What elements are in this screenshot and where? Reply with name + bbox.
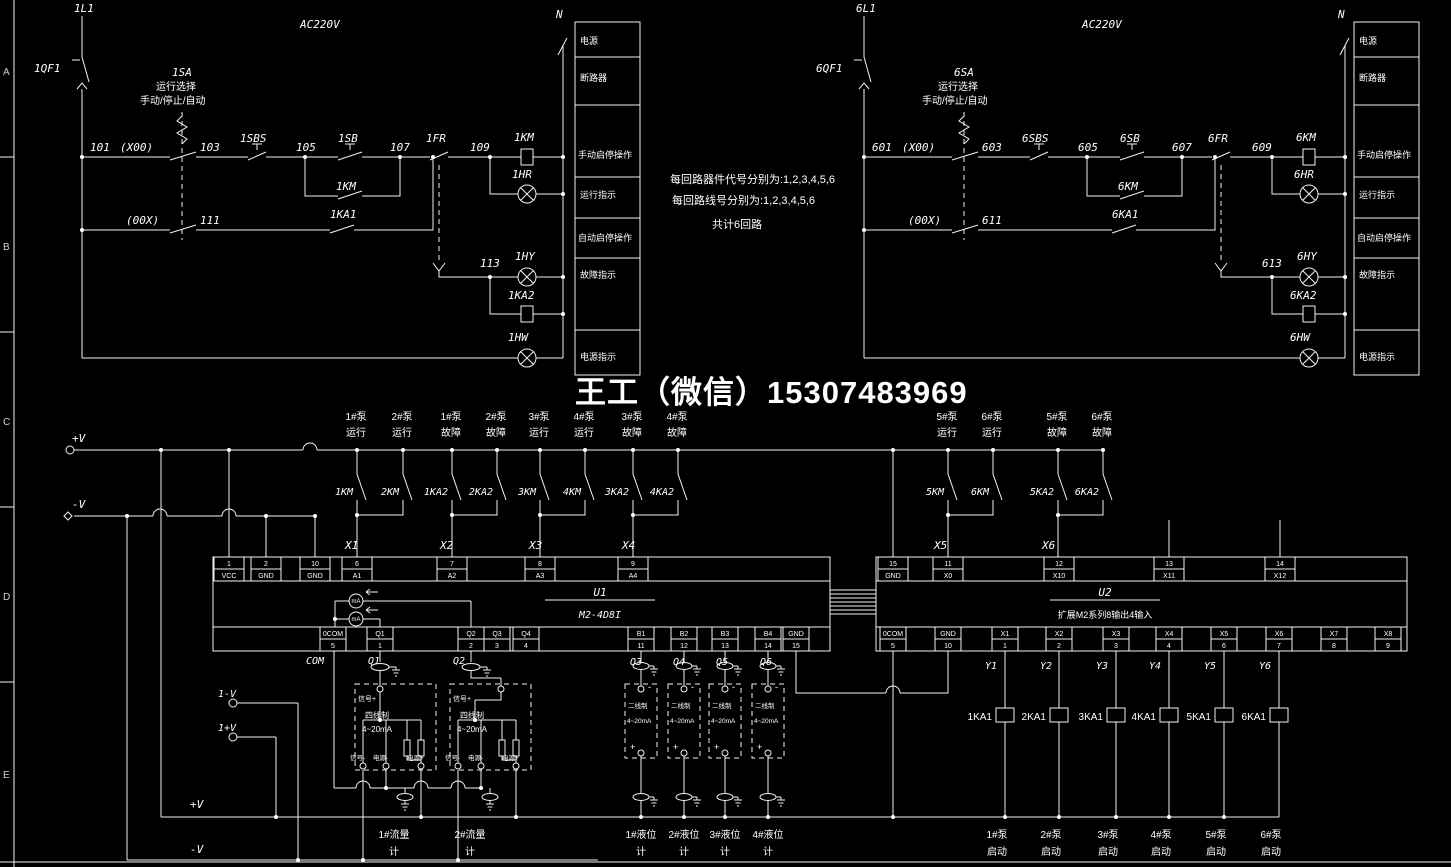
pump-start-caption: 启动	[1151, 845, 1171, 858]
terminal-ring-icon	[638, 686, 644, 692]
contact-caption: 6#泵	[1091, 411, 1112, 423]
pump-start-caption: 2#泵	[1040, 829, 1061, 841]
minus-v-terminal-icon	[64, 512, 72, 520]
terminal-number: 2	[469, 643, 473, 650]
relay-name: 3KA1	[1079, 712, 1104, 723]
lamp-label: 1HR	[512, 168, 532, 181]
terminal-x-refs: X1 X2 X3 X4 X5 X6	[344, 539, 1056, 552]
output-label: Y5	[1204, 661, 1216, 672]
relay-name: 6KA1	[1242, 712, 1267, 723]
relay-name: 5KA1	[1187, 712, 1212, 723]
terminal-label: Q4	[521, 631, 530, 638]
transmitter-pin-label: 信号+	[358, 694, 376, 703]
voltage-label: AC220V	[1081, 18, 1123, 31]
coil-label: 6KA2	[1290, 289, 1317, 302]
legend-row: 运行指示	[1359, 189, 1395, 200]
terminal-number: 1	[1003, 643, 1007, 650]
terminal-label: Q2	[466, 631, 475, 638]
signal-input-label: 1-V	[218, 689, 237, 700]
lamp-1HY-icon	[518, 268, 536, 286]
transmitter-type: 二线制	[712, 701, 732, 710]
legend-row: 运行指示	[580, 189, 616, 200]
terminal-ring-icon	[383, 763, 389, 769]
relay-contact-label: 1KA1	[330, 208, 357, 221]
cable-shield-icon	[633, 794, 649, 801]
terminal-label: A2	[448, 573, 457, 580]
terminal-label: X12	[1274, 573, 1287, 580]
transmitter-pin-label: 电源+	[502, 753, 519, 762]
legend-table-right: 电源 断路器 手动启停操作 运行指示 自动启停操作 故障指示 电源指示	[1354, 22, 1419, 375]
wire-number: (X00)	[902, 141, 935, 154]
pump-start-caption: 6#泵	[1260, 829, 1281, 841]
circuit6-junction-dots	[864, 157, 1345, 314]
contact-wires	[948, 450, 1112, 557]
legend-row: 断路器	[580, 72, 607, 83]
pump-status-contacts-left: 1#泵 运行 2#泵 运行 1#泵 故障 2#泵 故障 3#泵 运行 4#泵 运…	[335, 411, 688, 557]
frame-row-letter: E	[3, 770, 10, 781]
xref-label: X5	[933, 539, 947, 552]
relay-coil-1KA1-icon	[996, 708, 1014, 722]
ma-meter-label: mA	[352, 617, 361, 623]
terminal-number: 4	[1167, 643, 1171, 650]
contact-caption: 故障	[486, 426, 506, 439]
thermal-relay-label: 1FR	[426, 132, 446, 145]
signal-input-label: 1+V	[218, 723, 237, 734]
resistor-icon	[499, 740, 505, 756]
terminal-number: 12	[680, 643, 688, 650]
lamp-6HW-icon	[1300, 349, 1318, 367]
contact-caption: 2#泵	[391, 411, 412, 423]
coil-label: 6KM	[1296, 131, 1316, 144]
lamp-6HR-icon	[1300, 185, 1318, 203]
wire-number: 607	[1172, 141, 1192, 154]
loop-notes: 每回路器件代号分别为:1,2,3,4,5,6 每回路线号分别为:1,2,3,4,…	[670, 172, 835, 231]
contact-caption: 故障	[1047, 426, 1067, 439]
u2-underline	[1050, 520, 1280, 600]
contact-caption: 1#泵	[440, 411, 461, 423]
pump-start-caption: 1#泵	[986, 829, 1007, 841]
legend-row: 手动启停操作	[1357, 149, 1411, 160]
module-model: 扩展M2系列8输出4输入	[1058, 609, 1153, 620]
terminal-label: GND	[788, 631, 804, 638]
terminal-ring-icon	[722, 750, 728, 756]
polarity-label: +	[673, 742, 678, 752]
lamp-1HR-icon	[518, 185, 536, 203]
terminal-number: 13	[721, 643, 729, 650]
terminal-label: X2	[1055, 631, 1064, 638]
level-meter-caption: 计	[763, 845, 773, 858]
coil-1KM-icon	[521, 149, 533, 165]
transmitter-pin-label: 信号-	[445, 753, 460, 762]
cable-shield-icon	[462, 664, 480, 671]
pushbutton-label: 1SB	[338, 132, 358, 145]
lamp-6HY-icon	[1300, 268, 1318, 286]
terminal-number: 14	[764, 643, 772, 650]
terminal-number: 6	[1222, 643, 1226, 650]
terminal-ring-icon	[765, 750, 771, 756]
flow-meter-caption: 计	[389, 845, 399, 858]
terminal-number: 11	[944, 561, 951, 568]
lamp-label: 6HW	[1290, 331, 1311, 344]
coil-6KM-icon	[1303, 149, 1315, 165]
terminal-ring-icon	[681, 686, 687, 692]
legend-row: 电源	[1359, 35, 1377, 46]
terminal-ring-icon	[360, 763, 366, 769]
output-label: Y1	[985, 661, 997, 672]
pushbutton-label: 6SBS	[1022, 132, 1049, 145]
coil-6KA2-icon	[1303, 306, 1315, 322]
pushbutton-label: 6SB	[1120, 132, 1140, 145]
pump-start-caption: 4#泵	[1150, 829, 1171, 841]
frame-row-letter: C	[3, 417, 10, 428]
polarity-label: -	[732, 682, 735, 692]
circuit1-wires	[72, 16, 567, 358]
ma-meter-label: mA	[352, 599, 361, 605]
contact-name: 4KM	[563, 487, 582, 498]
contact-name: 1KM	[335, 487, 354, 498]
output-label: Y2	[1040, 661, 1052, 672]
phase-label: 1L1	[74, 2, 94, 15]
xref-label: X6	[1041, 539, 1056, 552]
contact-caption: 故障	[622, 426, 642, 439]
terminal-number: 8	[1332, 643, 1336, 650]
module-name: U1	[593, 586, 606, 599]
contact-caption: 故障	[441, 426, 461, 439]
contact-caption: 运行	[574, 426, 594, 439]
terminal-number: 6	[355, 561, 359, 568]
terminal-label: X3	[1112, 631, 1121, 638]
circuit6-wires	[854, 16, 1349, 358]
transmitter-pin-label: 电源-	[468, 753, 483, 762]
terminal-label: X10	[1053, 573, 1066, 580]
aux-contact-label: 6KM	[1118, 180, 1138, 193]
transmitter-range: 4~20mA	[754, 718, 779, 725]
terminal-label: A1	[353, 573, 362, 580]
terminal-number: 1	[227, 561, 231, 568]
terminal-label: B3	[721, 631, 730, 638]
transmitter-type: 二线制	[755, 701, 775, 710]
terminal-number: 3	[495, 643, 499, 650]
flow-meter-caption: 1#流量	[378, 828, 409, 841]
contact-caption: 运行	[982, 426, 1002, 439]
input-terminal-icon	[229, 699, 237, 707]
terminal-number: 9	[1386, 643, 1390, 650]
relay-name: 4KA1	[1132, 712, 1157, 723]
plc-module-u1: mA mA U1 M2-4D8I 1 VCC 2 GND 10 GND 6 A1…	[213, 557, 830, 668]
level-meter-caption: 1#液位	[625, 828, 656, 841]
pump-start-caption: 启动	[1206, 845, 1226, 858]
terminal-label: GND	[940, 631, 956, 638]
pump-start-caption: 启动	[1098, 845, 1118, 858]
relay-coil-4KA1-icon	[1160, 708, 1178, 722]
cable-shield-icon	[717, 794, 733, 801]
contact-name: 3KM	[517, 487, 537, 498]
wire-number: 105	[296, 141, 316, 154]
level-meter-caption: 计	[679, 845, 689, 858]
cable-shield-icon	[397, 794, 413, 801]
terminal-label: 0COM	[323, 631, 343, 638]
terminal-ring-icon	[513, 763, 519, 769]
terminal-label: B2	[680, 631, 689, 638]
flow-meter-caption: 计	[465, 845, 475, 858]
wire-number: (X00)	[120, 141, 153, 154]
legend-row: 故障指示	[580, 269, 616, 280]
cad-schematic-canvas: A B C D E 1L1 1QF1 AC220V N 1SA 运行选择 手动/…	[0, 0, 1451, 867]
transmitter-pin-label: 电源-	[373, 753, 388, 762]
terminal-number: 7	[450, 561, 454, 568]
frame-row-letter: A	[3, 67, 10, 78]
cable-shield-icon	[676, 794, 692, 801]
terminal-number: 14	[1276, 561, 1284, 568]
lamp-label: 1HY	[515, 250, 536, 263]
contact-junction-dots	[357, 450, 678, 515]
input-terminal-icon	[229, 733, 237, 741]
breaker-label: 6QF1	[816, 62, 843, 75]
terminal-label: X1	[1001, 631, 1010, 638]
terminal-label: Q3	[492, 631, 501, 638]
resistor-icon	[418, 740, 424, 756]
transmitter-type: 四线制	[460, 710, 484, 720]
contact-caption: 运行	[346, 426, 366, 439]
terminal-ring-icon	[478, 763, 484, 769]
flow-transmitters: 1-V 1+V 信号+ 四线制 4~20mA 信号- 电源- 电源+ 信号+ 四…	[127, 651, 768, 860]
selector-label: 6SA	[954, 66, 974, 79]
relay-name: 1KA1	[968, 712, 993, 723]
selector-caption: 运行选择	[156, 80, 196, 93]
terminal-label: X0	[944, 573, 953, 580]
level-transmitters: - - - - 二线制 4~20mA + 二线制 4~20mA + 二线制 4~…	[625, 651, 785, 858]
relay-wires	[161, 651, 1279, 817]
watermark-text: 王工（微信）15307483969	[575, 375, 968, 410]
neutral-label: N	[555, 8, 563, 21]
wire-number: 605	[1078, 141, 1098, 154]
level-meter-caption: 3#液位	[709, 828, 740, 841]
wire-number: 107	[390, 141, 410, 154]
terminal-label: X6	[1275, 631, 1284, 638]
terminal-number: 5	[891, 643, 895, 650]
terminal-number: 1	[378, 643, 382, 650]
bus-plus-label: +V	[190, 798, 205, 811]
frame-row-letter: D	[3, 592, 10, 603]
terminal-label: A3	[536, 573, 545, 580]
polarity-label: +	[757, 742, 762, 752]
terminal-label: X11	[1163, 573, 1175, 580]
u2-terminal-cells	[878, 557, 1401, 651]
transmitter-range: 4~20mA	[711, 718, 736, 725]
resistor-icon	[513, 740, 519, 756]
terminal-label: A4	[629, 573, 638, 580]
terminal-ring-icon	[455, 763, 461, 769]
terminal-label: X5	[1220, 631, 1229, 638]
contact-caption: 3#泵	[528, 411, 549, 423]
wire-label: COM	[306, 656, 325, 667]
output-label: Y4	[1149, 661, 1161, 672]
terminal-number: 11	[637, 643, 644, 650]
contact-name: 5KA2	[1030, 487, 1054, 498]
relay-coil-6KA1-icon	[1270, 708, 1288, 722]
legend-table-left: 电源 断路器 手动启停操作 运行指示 自动启停操作 故障指示 电源指示	[575, 22, 640, 375]
terminal-label: 0COM	[883, 631, 903, 638]
ribbon-cable-icon	[830, 590, 876, 614]
legend-row: 断路器	[1359, 72, 1386, 83]
legend-row: 故障指示	[1359, 269, 1395, 280]
drawing-frame: A B C D E	[0, 0, 1451, 867]
terminal-ring-icon	[681, 750, 687, 756]
contact-name: 5KM	[926, 487, 945, 498]
contact-wires	[357, 450, 687, 557]
output-label: Y6	[1259, 661, 1271, 672]
legend-row: 电源	[580, 35, 598, 46]
aux-contact-label: 1KM	[336, 180, 356, 193]
terminal-ring-icon	[498, 686, 504, 692]
transmitter-range: 4~20mA	[362, 725, 393, 734]
terminal-label: B1	[637, 631, 646, 638]
bus-junction-dots	[127, 450, 893, 516]
transmitter-range: 4~20mA	[627, 718, 652, 725]
wire-number: 101	[90, 141, 110, 154]
wire-number: 113	[480, 257, 500, 270]
selector-label: 1SA	[172, 66, 192, 79]
contact-caption: 5#泵	[936, 411, 957, 423]
level-meter-caption: 2#液位	[668, 828, 699, 841]
wire-number: 601	[872, 141, 892, 154]
bus-minus-label: -V	[72, 498, 87, 511]
terminal-label: GND	[258, 573, 274, 580]
note-line: 每回路器件代号分别为:1,2,3,4,5,6	[670, 172, 835, 186]
transmitter-pin-label: 信号+	[453, 694, 471, 703]
transmitter-range: 4~20mA	[670, 718, 695, 725]
relay-coil-5KA1-icon	[1215, 708, 1233, 722]
frame-row-letter: B	[3, 242, 10, 253]
legend-row: 电源指示	[1359, 351, 1395, 362]
wire-number: (00X)	[908, 214, 941, 227]
contact-caption: 5#泵	[1046, 411, 1067, 423]
contact-caption: 运行	[529, 426, 549, 439]
contact-caption: 4#泵	[666, 411, 687, 423]
legend-row: 自动启停操作	[578, 232, 632, 243]
flow-meter-caption: 2#流量	[454, 828, 485, 841]
relay-contact-label: 6KA1	[1112, 208, 1139, 221]
breaker-label: 1QF1	[34, 62, 61, 75]
plc-module-u2: U2 扩展M2系列8输出4输入 15 GND 11 X0 12 X10 13 X…	[876, 520, 1407, 651]
polarity-label: -	[648, 682, 651, 692]
module-name: U2	[1098, 586, 1112, 599]
wire-number: 603	[982, 141, 1002, 154]
contact-caption: 运行	[937, 426, 957, 439]
contact-name: 6KA2	[1075, 487, 1099, 498]
module-model: M2-4D8I	[578, 610, 621, 621]
terminal-number: 15	[889, 561, 897, 568]
contact-caption: 故障	[667, 426, 687, 439]
terminal-label: Q1	[375, 631, 384, 638]
lamp-label: 1HW	[508, 331, 529, 344]
xref-label: X1	[344, 539, 358, 552]
wire-number: (00X)	[126, 214, 159, 227]
contact-caption: 6#泵	[981, 411, 1002, 423]
terminal-number: 7	[1277, 643, 1281, 650]
terminal-number: 2	[264, 561, 268, 568]
pump-start-caption: 启动	[1041, 845, 1061, 858]
terminal-number: 15	[792, 643, 800, 650]
transmitter-range: 4~20mA	[457, 725, 488, 734]
polarity-label: +	[714, 742, 719, 752]
terminal-ring-icon	[418, 763, 424, 769]
contact-caption: 3#泵	[621, 411, 642, 423]
wire-label: Q1	[368, 656, 380, 667]
terminal-label: VCC	[222, 573, 237, 580]
circuit1-junction-dots	[82, 157, 563, 314]
legend-row: 电源指示	[580, 351, 616, 362]
terminal-number: 9	[631, 561, 635, 568]
terminal-ring-icon	[722, 686, 728, 692]
bus-plus-label: +V	[72, 432, 87, 445]
contact-name: 4KA2	[650, 487, 674, 498]
note-line: 共计6回路	[712, 218, 762, 231]
bus-minus-label: -V	[190, 843, 205, 856]
note-line: 每回路线号分别为:1,2,3,4,5,6	[672, 193, 815, 207]
lamp-label: 6HY	[1297, 250, 1318, 263]
voltage-label: AC220V	[299, 18, 341, 31]
selector-caption: 手动/停止/自动	[922, 94, 988, 107]
level-meter-caption: 计	[720, 845, 730, 858]
contact-name: 1KA2	[424, 487, 448, 498]
selector-caption: 手动/停止/自动	[140, 94, 206, 107]
pump-start-caption: 启动	[1261, 845, 1281, 858]
transmitter-type: 二线制	[628, 701, 648, 710]
level-meter-caption: 计	[636, 845, 646, 858]
pump-start-caption: 5#泵	[1205, 829, 1226, 841]
xref-label: X3	[528, 539, 542, 552]
output-label: Y3	[1096, 661, 1108, 672]
wire-number: 609	[1252, 141, 1272, 154]
pump-status-contacts-right: 5#泵 运行 6#泵 运行 5#泵 故障 6#泵 故障 5KM 6KM 5KA2…	[926, 411, 1113, 557]
pump-start-caption: 3#泵	[1097, 829, 1118, 841]
wire-number: 103	[200, 141, 220, 154]
xref-label: X2	[439, 539, 454, 552]
contact-caption: 运行	[392, 426, 412, 439]
terminal-ring-icon	[765, 686, 771, 692]
contact-name: 6KM	[971, 487, 990, 498]
terminal-number: 13	[1165, 561, 1173, 568]
wire-number: 611	[982, 214, 1002, 227]
pump-start-caption: 启动	[987, 845, 1007, 858]
relay-coil-2KA1-icon	[1050, 708, 1068, 722]
transmitter-pin-label: 信号-	[350, 753, 365, 762]
schematic-drawing: A B C D E 1L1 1QF1 AC220V N 1SA 运行选择 手动/…	[0, 0, 1451, 867]
contact-name: 3KA2	[604, 487, 629, 498]
transmitter-type: 四线制	[365, 710, 389, 720]
resistor-icon	[404, 740, 410, 756]
neutral-label: N	[1337, 8, 1345, 21]
cable-shield-icon	[760, 794, 776, 801]
relay-coil-3KA1-icon	[1107, 708, 1125, 722]
selector-caption: 运行选择	[938, 80, 978, 93]
transmitter-type: 二线制	[671, 701, 691, 710]
control-circuit-pump1: 1L1 1QF1 AC220V N 1SA 运行选择 手动/停止/自动 101 …	[34, 2, 567, 367]
u1-internal-wires	[335, 589, 655, 627]
terminal-number: 12	[1055, 561, 1063, 568]
terminal-label: B4	[764, 631, 773, 638]
terminal-ring-icon	[377, 686, 383, 692]
lamp-1HW-icon	[518, 349, 536, 367]
terminal-number: 10	[944, 643, 952, 650]
legend-row: 手动启停操作	[578, 149, 632, 160]
terminal-number: 3	[1114, 643, 1118, 650]
polarity-label: -	[691, 682, 694, 692]
phase-label: 6L1	[856, 2, 876, 15]
wire-number: 111	[200, 214, 220, 227]
plus-v-terminal-icon	[66, 446, 74, 454]
